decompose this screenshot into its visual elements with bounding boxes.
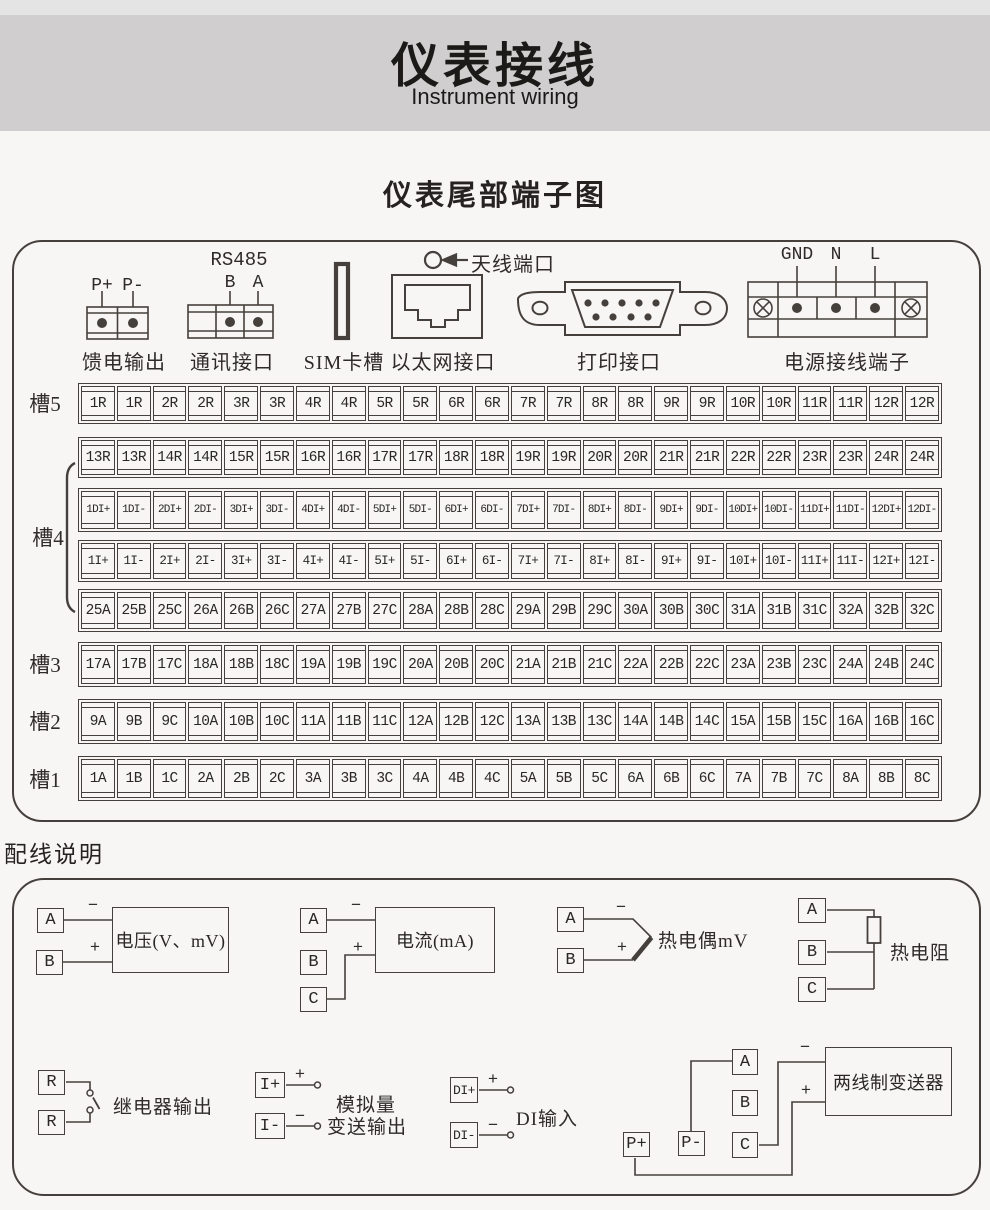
terminal-cell: 12I+ [869,543,903,579]
terminal-cell: 23B [762,645,796,684]
terminal-cell: 8I- [618,543,652,579]
terminal-cell: 6C [690,759,724,798]
terminal-cell: 7R [547,386,581,421]
terminal-cell: 32A [833,592,867,629]
terminal-cell: 5DI+ [368,491,402,529]
voltage-plus-sign: + [90,939,100,958]
terminal-cell: 14R [153,440,187,475]
terminal-cell: 10B [224,702,258,741]
terminal-cell: 15A [726,702,760,741]
terminal-cell: 3A [296,759,330,798]
terminal-cell: 31C [798,592,832,629]
terminal-cell: 3C [368,759,402,798]
terminal-cell: 16A [833,702,867,741]
section-title: 仪表尾部端子图 [383,172,607,214]
terminal-cell: 9R [654,386,688,421]
rtd-label: 热电阻 [890,938,950,965]
terminal-cell: 19B [332,645,366,684]
terminal-cell: 27B [332,592,366,629]
terminal-cell: 9A [81,702,115,741]
terminal-cell: 8DI- [618,491,652,529]
terminal-cell: 20C [475,645,509,684]
caption-ethernet-port: 以太网接口 [391,346,496,375]
terminal-cell: 17C [153,645,187,684]
terminal-cell: 26C [260,592,294,629]
terminal-cell: 10I- [762,543,796,579]
terminal-strip: 9A9B9C10A10B10C11A11B11C12A12B12C13A13B1… [78,699,942,744]
terminal-cell: 13A [511,702,545,741]
di-plus-sign: + [488,1071,498,1090]
terminal-cell: 11R [833,386,867,421]
terminal-cell: 9I+ [654,543,688,579]
terminal-cell: 31B [762,592,796,629]
terminal-cell: 15R [224,440,258,475]
terminal-cell: 24B [869,645,903,684]
terminal-cell: 19C [368,645,402,684]
terminal-cell: 18R [439,440,473,475]
analog-minus-sign: − [295,1108,305,1127]
relay-label: 继电器输出 [113,1092,213,1119]
di-label: DI输入 [516,1104,578,1131]
terminal-box-b: B [300,950,327,975]
terminal-cell: 21R [654,440,688,475]
slot-label-2: 槽2 [29,706,61,736]
terminal-box-a: A [732,1049,758,1075]
terminal-cell: 1I- [117,543,151,579]
terminal-cell: 16R [332,440,366,475]
terminal-cell: 2R [188,386,222,421]
terminal-cell: 6R [475,386,509,421]
slot-label-5: 槽5 [29,388,61,418]
terminal-cell: 26B [224,592,258,629]
current-minus-sign: − [351,897,361,916]
terminal-cell: 2DI+ [153,491,187,529]
page: 仪表接线 Instrument wiring 仪表尾部端子图 [0,0,990,1210]
pin-label-n: N [831,245,842,265]
terminal-cell: 7C [798,759,832,798]
terminal-cell: 14B [654,702,688,741]
terminal-cell: 12C [475,702,509,741]
terminal-cell: 5I+ [368,543,402,579]
terminal-cell: 3R [224,386,258,421]
voltage-minus-sign: − [88,897,98,916]
terminal-cell: 27A [296,592,330,629]
terminal-cell: 18R [475,440,509,475]
terminal-cell: 20B [439,645,473,684]
terminal-cell: 1R [117,386,151,421]
terminal-cell: 18B [224,645,258,684]
thermocouple-plus-sign: + [617,939,627,958]
terminal-cell: 27C [368,592,402,629]
terminal-cell: 13R [117,440,151,475]
terminal-cell: 11I- [833,543,867,579]
terminal-cell: 8DI+ [583,491,617,529]
caption-feed-output: 馈电输出 [82,346,166,375]
terminal-cell: 12DI- [905,491,939,529]
terminal-cell: 5A [511,759,545,798]
antenna-port-label: 天线端口 [471,248,555,277]
pin-label-p-minus: P- [122,276,144,296]
terminal-cell: 7DI- [547,491,581,529]
analog-plus-sign: + [295,1066,305,1085]
terminal-cell: 3I+ [224,543,258,579]
terminal-cell: 23C [798,645,832,684]
terminal-cell: 24A [833,645,867,684]
thermocouple-label: 热电偶mV [658,926,749,953]
terminal-cell: 5R [403,386,437,421]
terminal-cell: 10C [260,702,294,741]
terminal-cell: 7DI+ [511,491,545,529]
terminal-cell: 24R [905,440,939,475]
terminal-cell: 17B [117,645,151,684]
terminal-cell: 21C [583,645,617,684]
terminal-cell: 4C [475,759,509,798]
terminal-cell: 6A [618,759,652,798]
terminal-cell: 12R [905,386,939,421]
terminal-cell: 4B [439,759,473,798]
terminal-box-c: C [732,1132,758,1158]
terminal-cell: 6DI+ [439,491,473,529]
terminal-cell: 13C [583,702,617,741]
rs485-label: RS485 [210,249,267,271]
terminal-cell: 16C [905,702,939,741]
terminal-box-c: C [300,987,327,1012]
caption-comm-port: 通讯接口 [190,346,274,375]
terminal-cell: 2C [260,759,294,798]
terminal-strip: 1A1B1C2A2B2C3A3B3C4A4B4C5A5B5C6A6B6C7A7B… [78,756,942,801]
terminal-box-i-plus: I+ [255,1072,285,1098]
terminal-cell: 14R [188,440,222,475]
terminal-box-b: B [557,948,584,973]
terminal-cell: 6I+ [439,543,473,579]
terminal-cell: 5DI- [403,491,437,529]
terminal-cell: 8A [833,759,867,798]
terminal-cell: 1A [81,759,115,798]
terminal-cell: 10DI+ [726,491,760,529]
slot-label-3: 槽3 [29,649,61,679]
terminal-cell: 28A [403,592,437,629]
terminal-cell: 4A [403,759,437,798]
terminal-strip: 25A25B25C26A26B26C27A27B27C28A28B28C29A2… [78,589,942,632]
di-minus-sign: − [488,1117,498,1136]
terminal-cell: 17R [368,440,402,475]
terminal-cell: 4DI- [332,491,366,529]
terminal-cell: 4I- [332,543,366,579]
terminal-box-p-minus: P- [678,1131,705,1156]
terminal-box-a: A [300,908,327,933]
terminal-cell: 1B [117,759,151,798]
terminal-cell: 5B [547,759,581,798]
terminal-cell: 8R [618,386,652,421]
terminal-cell: 2A [188,759,222,798]
pin-label-p-plus: P+ [91,276,113,296]
terminal-cell: 3B [332,759,366,798]
terminal-cell: 13R [81,440,115,475]
terminal-cell: 7R [511,386,545,421]
terminal-cell: 8B [869,759,903,798]
terminal-cell: 3DI- [260,491,294,529]
terminal-cell: 22A [618,645,652,684]
terminal-cell: 2DI- [188,491,222,529]
terminal-box-b: B [798,940,826,965]
terminal-cell: 15R [260,440,294,475]
terminal-cell: 6B [654,759,688,798]
terminal-cell: 19A [296,645,330,684]
terminal-cell: 21B [547,645,581,684]
caption-printer-port: 打印接口 [577,346,661,375]
terminal-cell: 29C [583,592,617,629]
terminal-cell: 25B [117,592,151,629]
terminal-cell: 3I- [260,543,294,579]
terminal-cell: 4R [296,386,330,421]
terminal-cell: 12I- [905,543,939,579]
transmitter-plus-sign: + [801,1082,811,1101]
terminal-cell: 12B [439,702,473,741]
terminal-cell: 22R [726,440,760,475]
terminal-cell: 12DI+ [869,491,903,529]
terminal-cell: 9I- [690,543,724,579]
terminal-cell: 10R [762,386,796,421]
terminal-strip: 1DI+1DI-2DI+2DI-3DI+3DI-4DI+4DI-5DI+5DI-… [78,488,942,532]
terminal-cell: 23A [726,645,760,684]
terminal-cell: 1DI+ [81,491,115,529]
transmitter-box: 两线制变送器 [825,1047,952,1116]
terminal-cell: 2I- [188,543,222,579]
terminal-cell: 20A [403,645,437,684]
terminal-cell: 13B [547,702,581,741]
terminal-cell: 14C [690,702,724,741]
terminal-strip: 1I+1I-2I+2I-3I+3I-4I+4I-5I+5I-6I+6I-7I+7… [78,540,942,582]
terminal-cell: 14A [618,702,652,741]
terminal-cell: 5R [368,386,402,421]
terminal-cell: 19R [511,440,545,475]
terminal-cell: 2R [153,386,187,421]
terminal-cell: 24C [905,645,939,684]
terminal-cell: 16R [296,440,330,475]
terminal-cell: 8I+ [583,543,617,579]
top-strip [0,0,990,15]
terminal-cell: 3DI+ [224,491,258,529]
terminal-cell: 30A [618,592,652,629]
terminal-cell: 12A [403,702,437,741]
terminal-cell: 17A [81,645,115,684]
pin-label-b: B [225,273,236,293]
terminal-cell: 31A [726,592,760,629]
terminal-cell: 23R [833,440,867,475]
wiring-heading: 配线说明 [4,835,104,869]
terminal-cell: 9R [690,386,724,421]
terminal-cell: 28B [439,592,473,629]
terminal-cell: 9B [117,702,151,741]
terminal-cell: 26A [188,592,222,629]
terminal-cell: 20R [618,440,652,475]
terminal-cell: 30C [690,592,724,629]
terminal-cell: 9DI- [690,491,724,529]
terminal-cell: 2B [224,759,258,798]
terminal-cell: 18C [260,645,294,684]
terminal-strip: 13R13R14R14R15R15R16R16R17R17R18R18R19R1… [78,437,942,478]
terminal-cell: 1C [153,759,187,798]
terminal-cell: 25C [153,592,187,629]
terminal-cell: 15B [762,702,796,741]
terminal-cell: 4R [332,386,366,421]
pin-label-l: L [870,245,881,265]
terminal-box-r2: R [38,1110,65,1135]
terminal-cell: 6DI- [475,491,509,529]
terminal-cell: 4DI+ [296,491,330,529]
terminal-cell: 1R [81,386,115,421]
terminal-cell: 29A [511,592,545,629]
terminal-box-i-minus: I- [255,1113,285,1139]
terminal-box-r1: R [38,1070,65,1095]
terminal-cell: 11R [798,386,832,421]
terminal-cell: 22B [654,645,688,684]
terminal-cell: 9DI+ [654,491,688,529]
terminal-cell: 17R [403,440,437,475]
terminal-box-b: B [36,950,63,975]
pin-label-gnd: GND [781,245,813,265]
terminal-cell: 20R [583,440,617,475]
terminal-cell: 18A [188,645,222,684]
terminal-box-b: B [732,1090,758,1116]
terminal-cell: 11I+ [798,543,832,579]
terminal-cell: 16B [869,702,903,741]
terminal-box-a: A [557,907,584,932]
terminal-cell: 6I- [475,543,509,579]
terminal-cell: 8R [583,386,617,421]
page-subtitle: Instrument wiring [411,84,579,110]
terminal-cell: 1I+ [81,543,115,579]
terminal-cell: 32B [869,592,903,629]
terminal-cell: 25A [81,592,115,629]
terminal-box-a: A [798,898,826,923]
terminal-cell: 7I- [547,543,581,579]
terminal-cell: 11B [332,702,366,741]
terminal-box-c: C [798,977,826,1002]
terminal-strip: 17A17B17C18A18B18C19A19B19C20A20B20C21A2… [78,642,942,687]
pin-label-a: A [253,273,264,293]
terminal-box-di-plus: DI+ [450,1077,478,1103]
slot-label-4: 槽4 [32,522,64,552]
terminal-cell: 19R [547,440,581,475]
terminal-cell: 32C [905,592,939,629]
terminal-cell: 1DI- [117,491,151,529]
terminal-cell: 4I+ [296,543,330,579]
current-box: 电流(mA) [375,907,495,973]
analog-out-label-2: 变送输出 [327,1112,407,1139]
terminal-cell: 11A [296,702,330,741]
terminal-box-p-plus: P+ [623,1132,650,1157]
terminal-cell: 29B [547,592,581,629]
terminal-cell: 2I+ [153,543,187,579]
terminal-cell: 11DI- [833,491,867,529]
terminal-cell: 21A [511,645,545,684]
terminal-cell: 22C [690,645,724,684]
transmitter-minus-sign: − [800,1039,810,1058]
terminal-cell: 3R [260,386,294,421]
terminal-cell: 7A [726,759,760,798]
terminal-cell: 8C [905,759,939,798]
terminal-cell: 5I- [403,543,437,579]
terminal-cell: 7B [762,759,796,798]
terminal-box-a: A [37,908,64,933]
terminal-cell: 11C [368,702,402,741]
terminal-cell: 10DI- [762,491,796,529]
caption-power-terminal: 电源接线端子 [784,346,910,375]
terminal-cell: 10I+ [726,543,760,579]
terminal-cell: 6R [439,386,473,421]
slot-label-1: 槽1 [29,764,61,794]
terminal-cell: 5C [583,759,617,798]
terminal-cell: 28C [475,592,509,629]
voltage-box: 电压(V、mV) [112,907,229,973]
terminal-cell: 30B [654,592,688,629]
terminal-cell: 11DI+ [798,491,832,529]
terminal-strip: 1R1R2R2R3R3R4R4R5R5R6R6R7R7R8R8R9R9R10R1… [78,383,942,424]
terminal-cell: 15C [798,702,832,741]
terminal-cell: 23R [798,440,832,475]
terminal-cell: 7I+ [511,543,545,579]
terminal-cell: 24R [869,440,903,475]
terminal-cell: 10R [726,386,760,421]
terminal-cell: 22R [762,440,796,475]
terminal-cell: 9C [153,702,187,741]
terminal-box-di-minus: DI- [450,1122,478,1148]
terminal-cell: 12R [869,386,903,421]
terminal-cell: 10A [188,702,222,741]
caption-sim-slot: SIM卡槽 [304,346,385,375]
terminal-cell: 21R [690,440,724,475]
thermocouple-minus-sign: − [616,899,626,918]
current-plus-sign: + [353,939,363,958]
